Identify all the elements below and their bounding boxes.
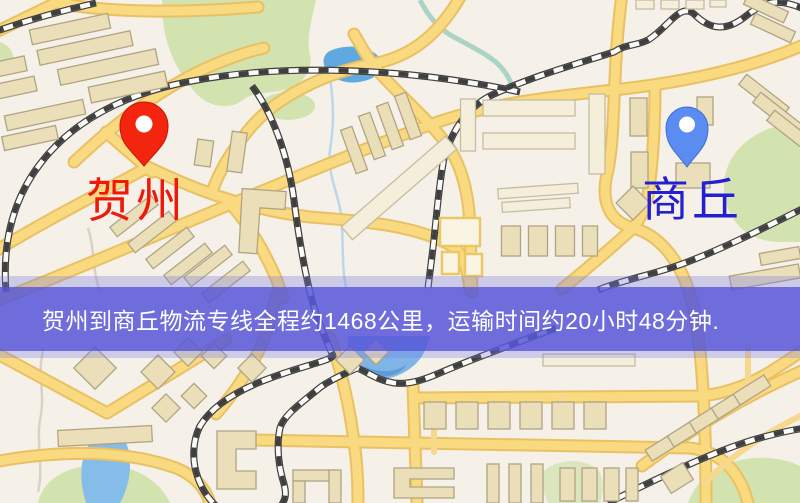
route-info-banner: 贺州到商丘物流专线全程约1468公里，运输时间约20小时48分钟. xyxy=(0,287,800,351)
destination-pin-hole xyxy=(679,117,695,133)
map-canvas[interactable] xyxy=(0,0,800,503)
route-info-text: 贺州到商丘物流专线全程约1468公里，运输时间约20小时48分钟. xyxy=(0,302,719,336)
origin-label: 贺州 xyxy=(86,177,186,224)
map-screenshot: 贺州 商丘 贺州到商丘物流专线全程约1468公里，运输时间约20小时48分钟. xyxy=(0,0,800,503)
destination-label: 商丘 xyxy=(642,176,742,223)
origin-pin-hole xyxy=(136,116,153,133)
